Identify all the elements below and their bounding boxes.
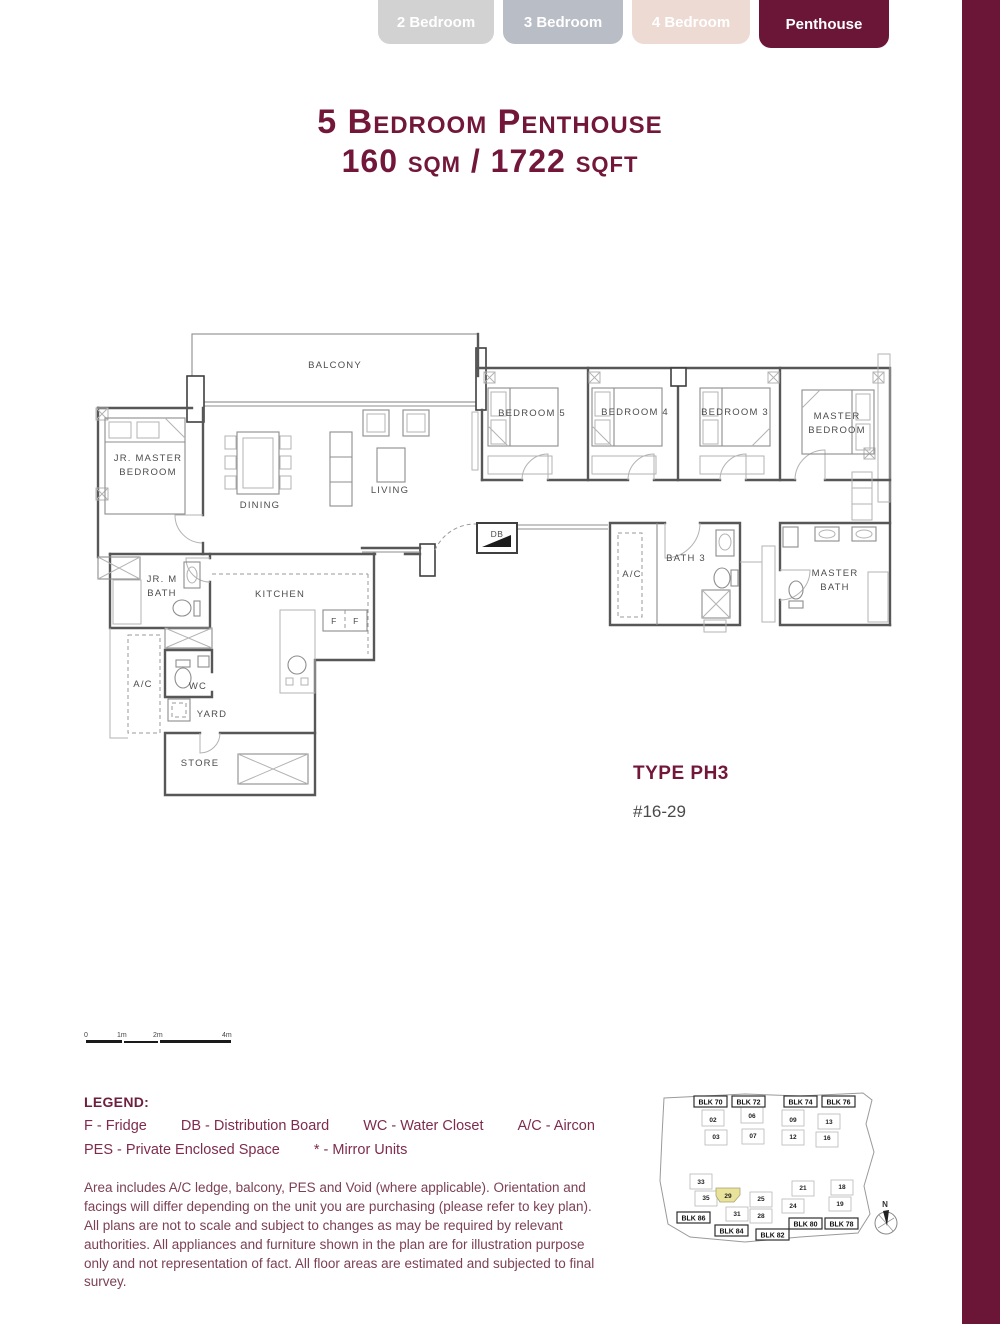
- unit-35: 35: [702, 1195, 710, 1202]
- north-compass-icon: N: [875, 1200, 897, 1234]
- site-key-plan: BLK 70 BLK 72 BLK 74 BLK 76 BLK 86 BLK 8…: [650, 1086, 906, 1256]
- tab-penthouse-active[interactable]: Penthouse: [759, 0, 889, 48]
- jr-master-bedroom-furniture: [105, 408, 203, 554]
- legend-row-2: PES - Private Enclosed Space * - Mirror …: [84, 1142, 644, 1158]
- blk-70-label: BLK 70: [698, 1100, 722, 1107]
- scale-0: 0: [84, 1032, 88, 1039]
- label-ac-upper: A/C: [622, 569, 641, 580]
- blk-74-label: BLK 74: [788, 1100, 812, 1107]
- label-db: DB: [491, 529, 504, 539]
- label-bath3: BATH 3: [666, 553, 706, 564]
- label-fridge-left: F: [331, 616, 337, 626]
- label-kitchen: KITCHEN: [255, 589, 305, 600]
- label-living: LIVING: [371, 485, 409, 496]
- scale-1m: 1m: [117, 1032, 127, 1039]
- room-labels: BALCONY JR. MASTER BEDROOM DINING LIVING…: [114, 360, 866, 769]
- balcony-outline: [187, 334, 486, 422]
- unit-21: 21: [799, 1185, 807, 1192]
- label-wc: WC: [189, 681, 207, 692]
- floor-plan-drawing: BALCONY JR. MASTER BEDROOM DINING LIVING…: [80, 320, 900, 820]
- blk-84-label: BLK 84: [719, 1229, 743, 1236]
- label-bedroom5: BEDROOM 5: [498, 408, 566, 419]
- legend: LEGEND: F - Fridge DB - Distribution Boa…: [84, 1094, 644, 1158]
- blk-78-label: BLK 78: [829, 1222, 853, 1229]
- scale-4m: 4m: [222, 1032, 232, 1039]
- blk-86-label: BLK 86: [681, 1216, 705, 1223]
- bedroom-type-tabs: 2 Bedroom 3 Bedroom 4 Bedroom Penthouse: [378, 0, 889, 48]
- label-fridge-right: F: [353, 616, 359, 626]
- label-ac-lower: A/C: [133, 679, 152, 690]
- right-accent-strip: [962, 0, 1000, 1324]
- legend-item-db: DB - Distribution Board: [181, 1118, 329, 1134]
- unit-02: 02: [709, 1117, 717, 1124]
- scale-bar: 0 1m 2m 4m: [84, 1029, 244, 1049]
- unit-16: 16: [823, 1135, 831, 1142]
- tab-2-bedroom[interactable]: 2 Bedroom: [378, 0, 494, 44]
- legend-item-pes: PES - Private Enclosed Space: [84, 1142, 280, 1158]
- unit-18: 18: [838, 1184, 846, 1191]
- label-master-bath-1: MASTER: [812, 568, 859, 579]
- unit-24: 24: [789, 1203, 797, 1210]
- unit-13: 13: [825, 1119, 833, 1126]
- compass-n-label: N: [882, 1200, 888, 1209]
- label-dining: DINING: [240, 500, 280, 511]
- blk-82-label: BLK 82: [760, 1233, 784, 1240]
- label-master-1: MASTER: [814, 411, 861, 422]
- floorplan-page: 2 Bedroom 3 Bedroom 4 Bedroom Penthouse …: [0, 0, 1000, 1324]
- scale-2m: 2m: [153, 1032, 163, 1039]
- legend-item-ac: A/C - Aircon: [518, 1118, 595, 1134]
- blk-80-label: BLK 80: [793, 1222, 817, 1229]
- label-jr-bath-1: JR. M: [147, 574, 178, 585]
- label-balcony: BALCONY: [308, 360, 362, 371]
- label-jr-master-1: JR. MASTER: [114, 453, 182, 464]
- label-master-2: BEDROOM: [808, 425, 866, 436]
- dining-furniture: [225, 432, 291, 494]
- label-yard: YARD: [197, 709, 228, 720]
- label-master-bath-2: BATH: [820, 582, 849, 593]
- site-block-labels-top: BLK 70 BLK 72 BLK 74 BLK 76: [694, 1096, 855, 1107]
- unit-03: 03: [712, 1134, 720, 1141]
- floor-plan: BALCONY JR. MASTER BEDROOM DINING LIVING…: [80, 320, 900, 820]
- legend-item-fridge: F - Fridge: [84, 1118, 147, 1134]
- unit-number: #16-29: [633, 802, 729, 822]
- unit-25: 25: [757, 1196, 765, 1203]
- unit-19: 19: [836, 1201, 844, 1208]
- tab-4-bedroom[interactable]: 4 Bedroom: [632, 0, 750, 44]
- disclaimer-text: Area includes A/C ledge, balcony, PES an…: [84, 1179, 604, 1292]
- label-jr-bath-2: BATH: [147, 588, 176, 599]
- label-jr-master-2: BEDROOM: [119, 467, 177, 478]
- unit-28: 28: [757, 1213, 765, 1220]
- label-store: STORE: [181, 758, 220, 769]
- unit-29: 29: [724, 1193, 732, 1200]
- unit-31: 31: [733, 1211, 741, 1218]
- label-bedroom3: BEDROOM 3: [701, 407, 769, 418]
- page-title: 5 Bedroom Penthouse 160 sqm / 1722 sqft: [90, 104, 890, 180]
- blk-76-label: BLK 76: [826, 1100, 850, 1107]
- title-line-2: 160 sqm / 1722 sqft: [90, 143, 890, 180]
- unit-12: 12: [789, 1134, 797, 1141]
- type-info: TYPE PH3 #16-29: [633, 763, 729, 822]
- legend-row-1: F - Fridge DB - Distribution Board WC - …: [84, 1118, 644, 1134]
- blk-72-label: BLK 72: [736, 1100, 760, 1107]
- unit-06: 06: [748, 1113, 756, 1120]
- unit-33: 33: [697, 1179, 705, 1186]
- type-label: TYPE PH3: [633, 763, 729, 785]
- unit-07: 07: [749, 1133, 757, 1140]
- tab-3-bedroom[interactable]: 3 Bedroom: [503, 0, 623, 44]
- unit-09: 09: [789, 1117, 797, 1124]
- legend-item-wc: WC - Water Closet: [363, 1118, 483, 1134]
- legend-item-mirror: * - Mirror Units: [314, 1142, 407, 1158]
- entry-and-db: [362, 523, 608, 576]
- label-bedroom4: BEDROOM 4: [601, 407, 669, 418]
- title-line-1: 5 Bedroom Penthouse: [90, 104, 890, 141]
- walls: [96, 334, 890, 625]
- legend-title: LEGEND:: [84, 1094, 644, 1110]
- site-block-labels-bottom: BLK 86 BLK 84 BLK 82 BLK 80 BLK 78: [677, 1212, 858, 1240]
